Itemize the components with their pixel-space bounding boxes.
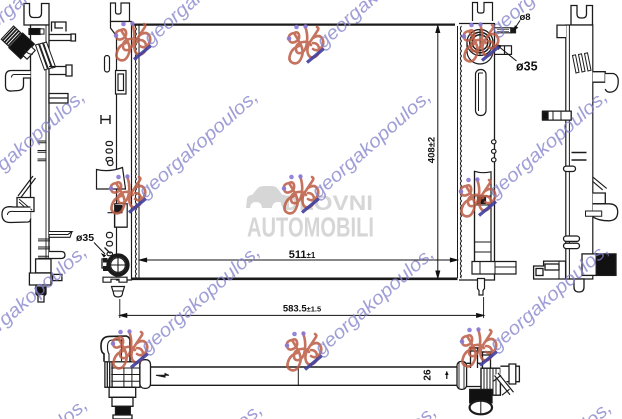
svg-text:511±1: 511±1 (289, 249, 316, 261)
svg-text:408±2: 408±2 (427, 137, 438, 163)
svg-text:583.5±1.5: 583.5±1.5 (283, 304, 321, 315)
svg-text:AUTOMOBILI: AUTOMOBILI (247, 212, 374, 243)
svg-text:26: 26 (423, 369, 434, 381)
svg-text:ø35: ø35 (516, 60, 538, 74)
svg-text:ø35: ø35 (76, 232, 94, 244)
